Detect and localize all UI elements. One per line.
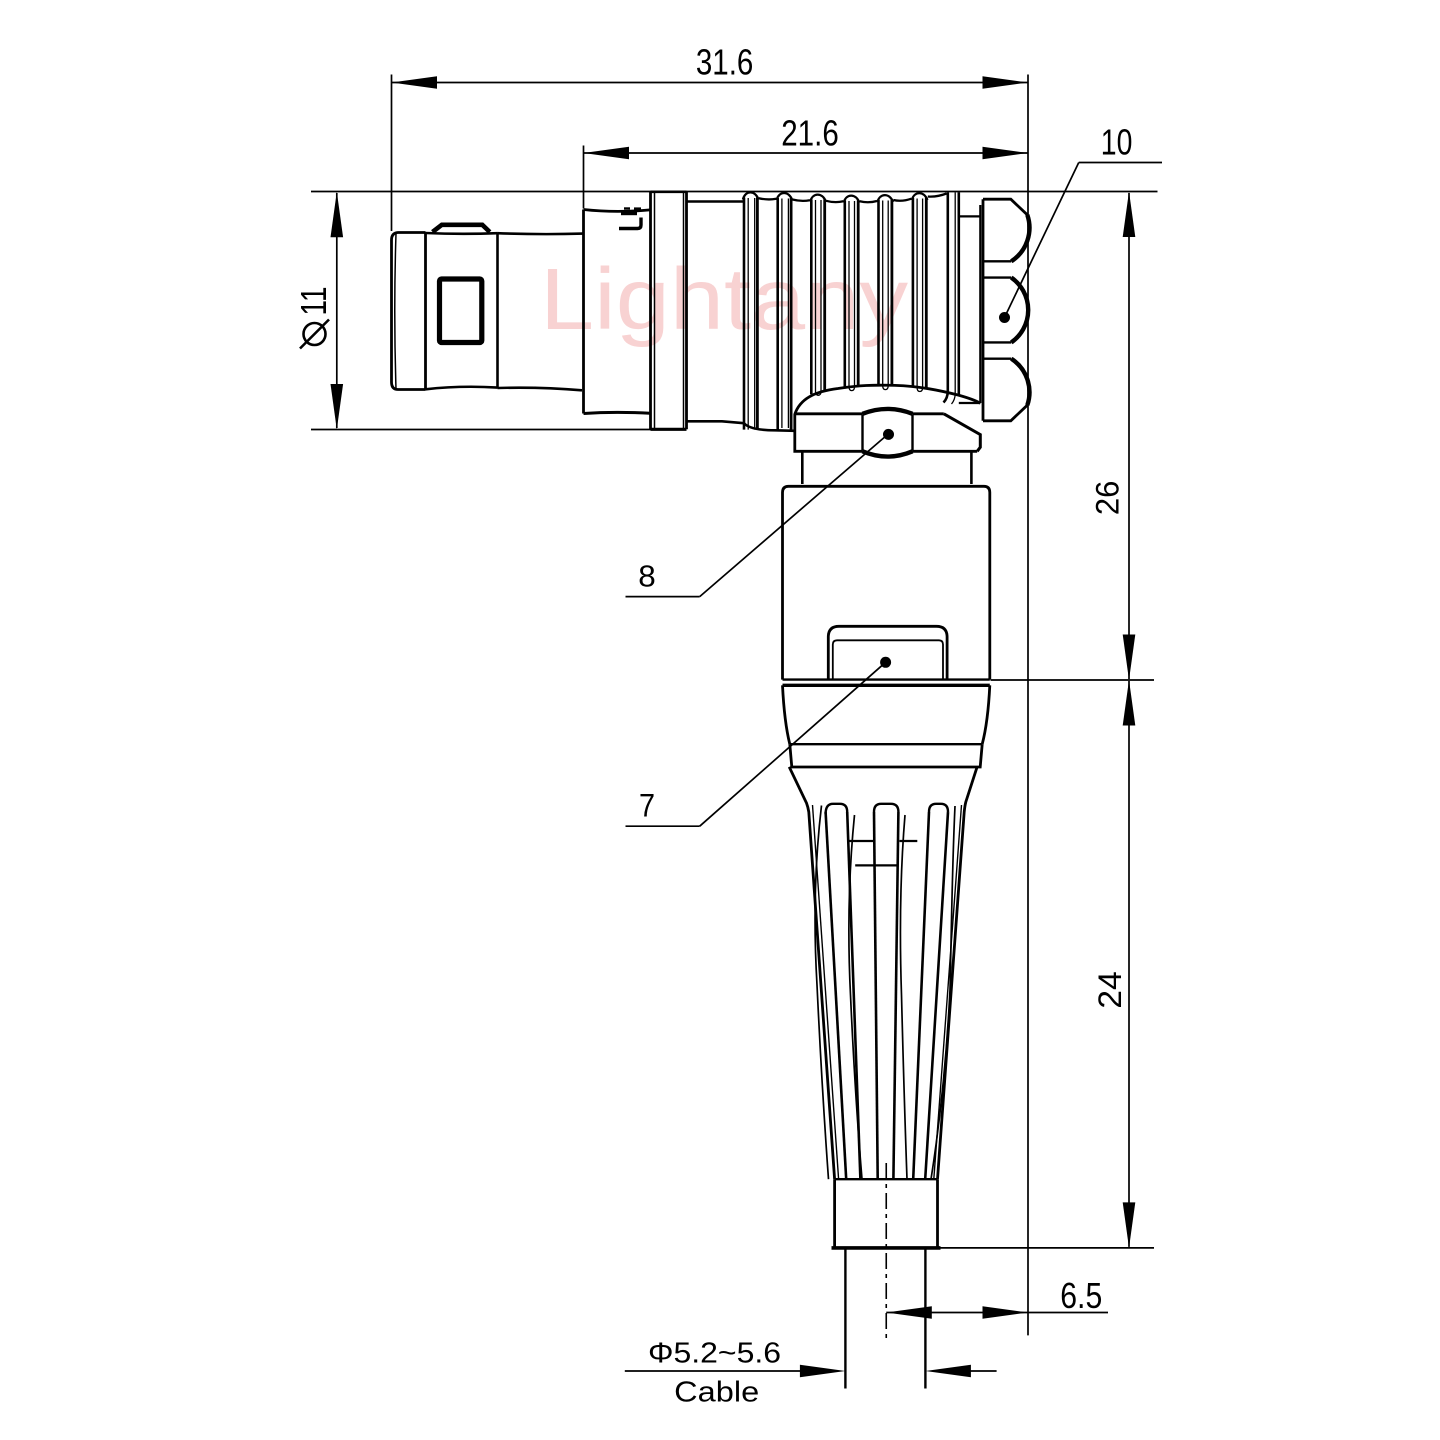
svg-text:11: 11 xyxy=(293,287,334,316)
svg-text:Lightany: Lightany xyxy=(540,251,909,348)
svg-text:31.6: 31.6 xyxy=(696,42,754,83)
svg-text:Cable: Cable xyxy=(674,1377,759,1409)
svg-text:6.5: 6.5 xyxy=(1060,1275,1102,1316)
svg-text:26: 26 xyxy=(1089,481,1125,516)
svg-text:Φ5.2~5.6: Φ5.2~5.6 xyxy=(648,1337,781,1369)
svg-text:7: 7 xyxy=(639,788,655,824)
svg-text:10: 10 xyxy=(1101,122,1133,163)
svg-text:21.6: 21.6 xyxy=(781,113,839,154)
svg-text:24: 24 xyxy=(1092,971,1128,1009)
svg-text:8: 8 xyxy=(638,559,656,594)
